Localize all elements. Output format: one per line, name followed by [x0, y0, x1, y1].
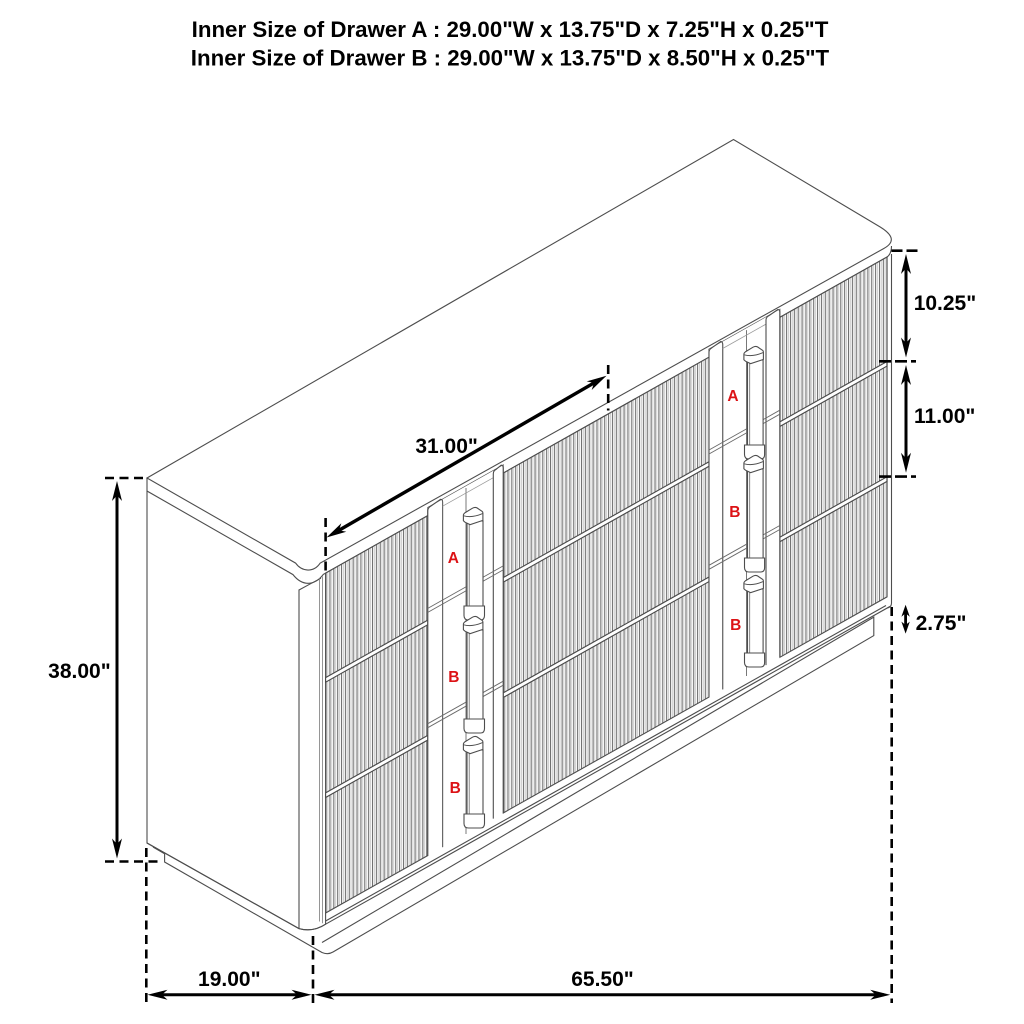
svg-text:65.50": 65.50": [571, 968, 634, 991]
svg-text:B: B: [448, 669, 459, 686]
svg-text:B: B: [730, 617, 741, 634]
svg-text:A: A: [448, 550, 459, 567]
svg-text:B: B: [450, 780, 461, 797]
svg-text:B: B: [729, 504, 740, 521]
svg-text:38.00": 38.00": [48, 660, 111, 683]
svg-text:Inner Size of Drawer A : 29.00: Inner Size of Drawer A : 29.00"W x 13.75…: [192, 17, 829, 42]
svg-text:A: A: [727, 388, 738, 405]
svg-text:2.75": 2.75": [916, 612, 967, 635]
svg-text:Inner Size of Drawer B : 29.00: Inner Size of Drawer B : 29.00"W x 13.75…: [191, 46, 830, 71]
svg-text:10.25": 10.25": [914, 292, 977, 315]
svg-text:31.00": 31.00": [415, 435, 478, 458]
svg-text:11.00": 11.00": [914, 405, 975, 428]
svg-text:19.00": 19.00": [198, 968, 261, 991]
